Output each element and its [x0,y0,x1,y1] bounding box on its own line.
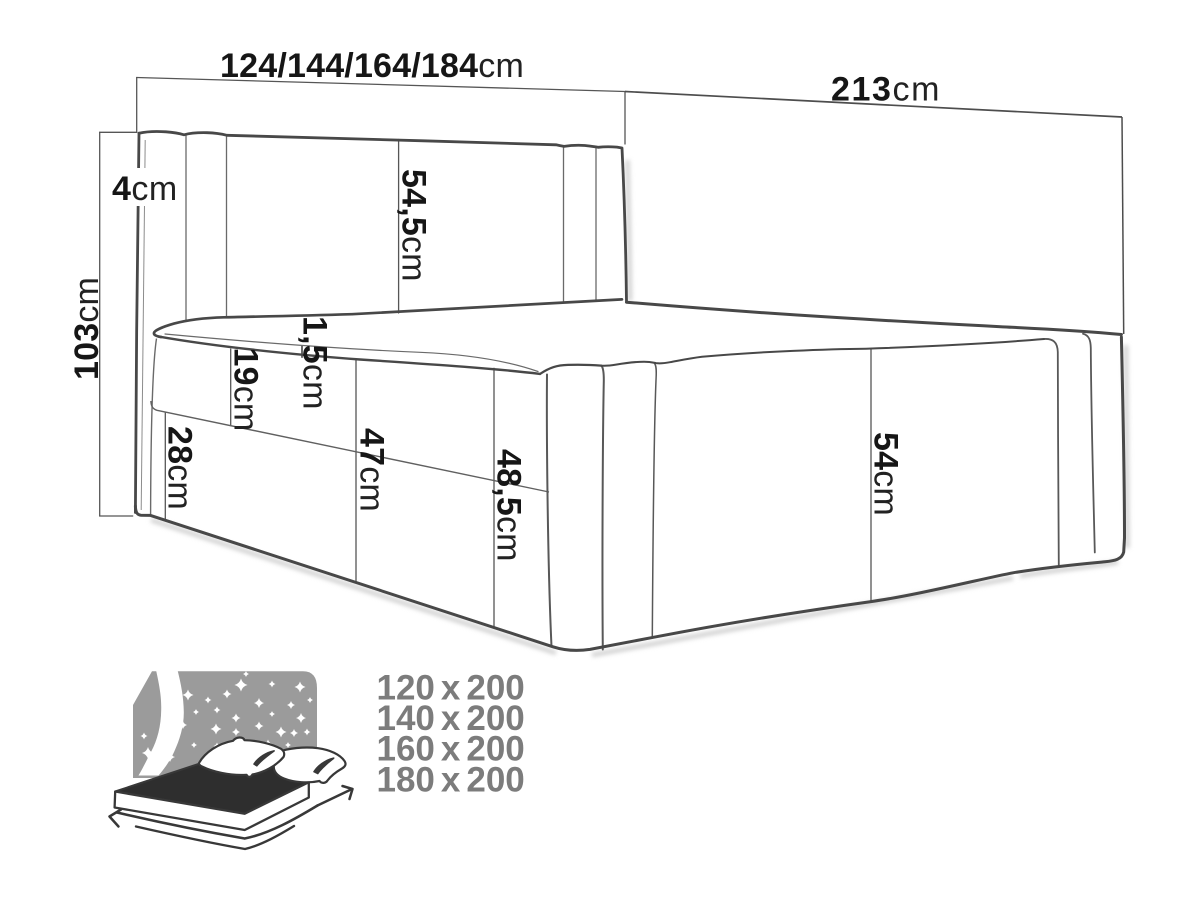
svg-text:19cm: 19cm [227,348,265,432]
svg-text:4cm: 4cm [112,170,178,208]
svg-text:48,5cm: 48,5cm [490,449,528,562]
svg-text:103cm: 103cm [68,277,106,380]
svg-text:54cm: 54cm [867,432,905,516]
svg-text:1,5cm: 1,5cm [296,316,334,410]
svg-text:124/144/164/184cm: 124/144/164/184cm [220,47,524,85]
svg-text:213cm: 213cm [831,71,941,109]
svg-text:54,5cm: 54,5cm [395,169,433,282]
svg-text:47cm: 47cm [353,428,391,512]
svg-text:180x200: 180x200 [377,760,525,799]
svg-text:28cm: 28cm [161,426,199,510]
